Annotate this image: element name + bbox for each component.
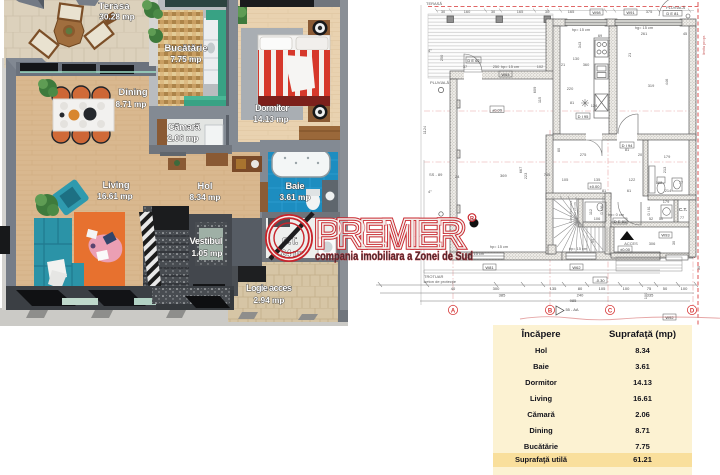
- svg-text:D I 81: D I 81: [647, 206, 651, 215]
- svg-text:306: 306: [649, 241, 656, 246]
- svg-text:Cămară: Cămară: [168, 122, 201, 132]
- svg-text:369: 369: [500, 173, 507, 178]
- svg-text:100: 100: [681, 286, 688, 291]
- svg-text:Living: Living: [103, 180, 130, 190]
- svg-text:SS - 89: SS - 89: [429, 172, 443, 177]
- svg-text:PREMIER: PREMIER: [314, 210, 466, 257]
- svg-text:Terasa: Terasa: [99, 1, 131, 11]
- svg-text:24: 24: [455, 174, 460, 179]
- svg-text:360: 360: [583, 62, 590, 67]
- svg-text:PLUVIALĂ: PLUVIALĂ: [430, 80, 449, 85]
- svg-text:Dormitor: Dormitor: [255, 103, 289, 113]
- svg-text:Hol: Hol: [198, 181, 213, 191]
- svg-text:375: 375: [646, 9, 653, 14]
- svg-text:20: 20: [638, 152, 643, 157]
- svg-text:213: 213: [662, 167, 667, 174]
- svg-text:±0.00: ±0.00: [590, 184, 601, 189]
- svg-text:50: 50: [663, 286, 668, 291]
- svg-text:745: 745: [544, 172, 551, 177]
- svg-text:52: 52: [649, 216, 653, 221]
- svg-text:TERASĂ: TERASĂ: [426, 1, 442, 6]
- svg-text:335: 335: [647, 293, 654, 298]
- svg-text:30: 30: [441, 9, 446, 14]
- svg-text:ACCES: ACCES: [624, 241, 638, 246]
- svg-text:1.05 mp: 1.05 mp: [192, 248, 223, 258]
- svg-text:30: 30: [671, 240, 676, 245]
- svg-text:W92: W92: [665, 315, 674, 320]
- svg-text:135: 135: [550, 286, 557, 291]
- svg-text:30.28 mp: 30.28 mp: [99, 12, 135, 22]
- svg-text:55 - AA: 55 - AA: [565, 307, 578, 312]
- svg-text:122: 122: [629, 177, 636, 182]
- svg-text:hp= 15 cm: hp= 15 cm: [569, 246, 587, 251]
- svg-text:30: 30: [491, 9, 496, 14]
- svg-text:985: 985: [570, 298, 577, 303]
- svg-text:D E 81: D E 81: [614, 219, 627, 224]
- svg-text:112: 112: [588, 209, 593, 215]
- svg-text:115: 115: [537, 97, 542, 103]
- svg-text:105: 105: [562, 177, 569, 182]
- svg-text:-0.30: -0.30: [595, 278, 605, 283]
- svg-text:4°: 4°: [428, 48, 432, 53]
- svg-text:limita propr.: limita propr.: [701, 35, 706, 55]
- svg-text:102: 102: [656, 180, 663, 185]
- svg-text:C: C: [608, 308, 613, 314]
- svg-text:609: 609: [532, 87, 537, 94]
- svg-text:240: 240: [577, 293, 584, 298]
- svg-text:80: 80: [578, 286, 583, 291]
- svg-text:beton de protecţie: beton de protecţie: [424, 279, 457, 284]
- svg-text:385: 385: [499, 293, 506, 298]
- svg-text:21: 21: [561, 62, 565, 67]
- svg-text:W93: W93: [661, 233, 670, 238]
- svg-text:300: 300: [493, 286, 500, 291]
- svg-text:165: 165: [568, 9, 575, 14]
- svg-text:50: 50: [659, 216, 664, 221]
- svg-text:135: 135: [594, 177, 601, 182]
- svg-text:D: D: [690, 308, 695, 314]
- svg-text:C.T.: C.T.: [679, 207, 687, 212]
- svg-text:75: 75: [647, 286, 652, 291]
- svg-text:R: R: [470, 216, 474, 222]
- svg-text:W98: W98: [592, 10, 601, 15]
- svg-text:81: 81: [570, 100, 574, 105]
- svg-text:Dining: Dining: [119, 87, 148, 97]
- svg-text:D I 96: D I 96: [600, 205, 604, 214]
- svg-text:hp= 15 cm: hp= 15 cm: [490, 244, 508, 249]
- svg-text:160: 160: [464, 9, 471, 14]
- svg-text:D I 95: D I 95: [578, 114, 589, 119]
- svg-text:220: 220: [567, 86, 574, 91]
- svg-text:214: 214: [665, 188, 672, 193]
- svg-text:Bucătărie: Bucătărie: [165, 43, 208, 53]
- svg-text:hp= 15 cm: hp= 15 cm: [501, 64, 519, 69]
- svg-text:D I 94: D I 94: [622, 143, 633, 148]
- svg-text:1124: 1124: [422, 125, 427, 134]
- svg-text:446: 446: [664, 79, 669, 86]
- svg-text:hp= 0 cm: hp= 0 cm: [608, 212, 624, 217]
- svg-text:95: 95: [590, 239, 595, 243]
- svg-text:B: B: [548, 308, 553, 314]
- svg-text:30: 30: [696, 265, 701, 270]
- svg-text:W91: W91: [626, 10, 635, 15]
- svg-text:105: 105: [599, 286, 606, 291]
- svg-text:80: 80: [556, 147, 561, 152]
- svg-text:16.61 mp: 16.61 mp: [97, 191, 133, 201]
- svg-text:223: 223: [523, 173, 528, 180]
- svg-text:±0.00: ±0.00: [492, 108, 503, 113]
- svg-text:W81: W81: [485, 265, 494, 270]
- svg-text:179: 179: [664, 154, 671, 159]
- svg-text:PLUVIALĂ: PLUVIALĂ: [666, 5, 685, 10]
- svg-text:61: 61: [627, 188, 631, 193]
- svg-text:77: 77: [679, 180, 683, 185]
- svg-text:Baie: Baie: [286, 181, 305, 191]
- svg-text:14.8 cm x 25 cm: 14.8 cm x 25 cm: [573, 202, 577, 226]
- svg-text:14.13 mp: 14.13 mp: [253, 114, 289, 124]
- svg-text:343: 343: [577, 42, 582, 49]
- svg-text:77: 77: [680, 215, 684, 220]
- svg-text:100: 100: [623, 286, 630, 291]
- svg-text:8.71 mp: 8.71 mp: [116, 99, 147, 109]
- svg-text:667: 667: [518, 167, 523, 174]
- svg-text:W64: W64: [501, 72, 510, 77]
- svg-text:37: 37: [463, 64, 467, 69]
- svg-text:4°: 4°: [428, 189, 432, 194]
- svg-text:D E 81: D E 81: [666, 11, 679, 16]
- svg-text:69: 69: [598, 33, 602, 38]
- svg-text:2.94 mp: 2.94 mp: [254, 295, 285, 305]
- svg-text:102: 102: [537, 64, 544, 69]
- svg-text:250: 250: [439, 54, 444, 61]
- svg-text:21: 21: [627, 53, 632, 57]
- svg-text:±0.00: ±0.00: [620, 247, 631, 252]
- svg-text:hg= 15 cm: hg= 15 cm: [635, 25, 653, 30]
- svg-text:Logie acces: Logie acces: [246, 283, 292, 293]
- svg-text:hp= 15 cm: hp= 15 cm: [572, 27, 590, 32]
- svg-text:A: A: [451, 308, 456, 314]
- svg-text:compania imobiliara a Zonei de: compania imobiliara a Zonei de Sud: [315, 251, 473, 263]
- svg-text:81: 81: [602, 188, 606, 193]
- svg-text:Vestibul: Vestibul: [190, 236, 223, 246]
- svg-text:7.75 mp: 7.75 mp: [171, 54, 202, 64]
- svg-text:319: 319: [648, 83, 655, 88]
- svg-text:165: 165: [517, 9, 524, 14]
- svg-text:D E 62: D E 62: [467, 58, 480, 63]
- svg-text:130: 130: [573, 56, 580, 61]
- svg-text:40: 40: [451, 286, 456, 291]
- svg-text:275: 275: [580, 152, 587, 157]
- svg-text:250: 250: [493, 64, 500, 69]
- svg-text:8.34 mp: 8.34 mp: [190, 192, 221, 202]
- svg-text:124: 124: [591, 103, 598, 108]
- svg-text:2.06 mp: 2.06 mp: [168, 133, 199, 143]
- svg-text:106: 106: [594, 216, 601, 221]
- svg-text:W62: W62: [572, 265, 581, 270]
- svg-text:3.61 mp: 3.61 mp: [280, 192, 311, 202]
- svg-text:261: 261: [641, 31, 648, 36]
- svg-text:179: 179: [663, 199, 670, 204]
- svg-text:45: 45: [683, 31, 687, 36]
